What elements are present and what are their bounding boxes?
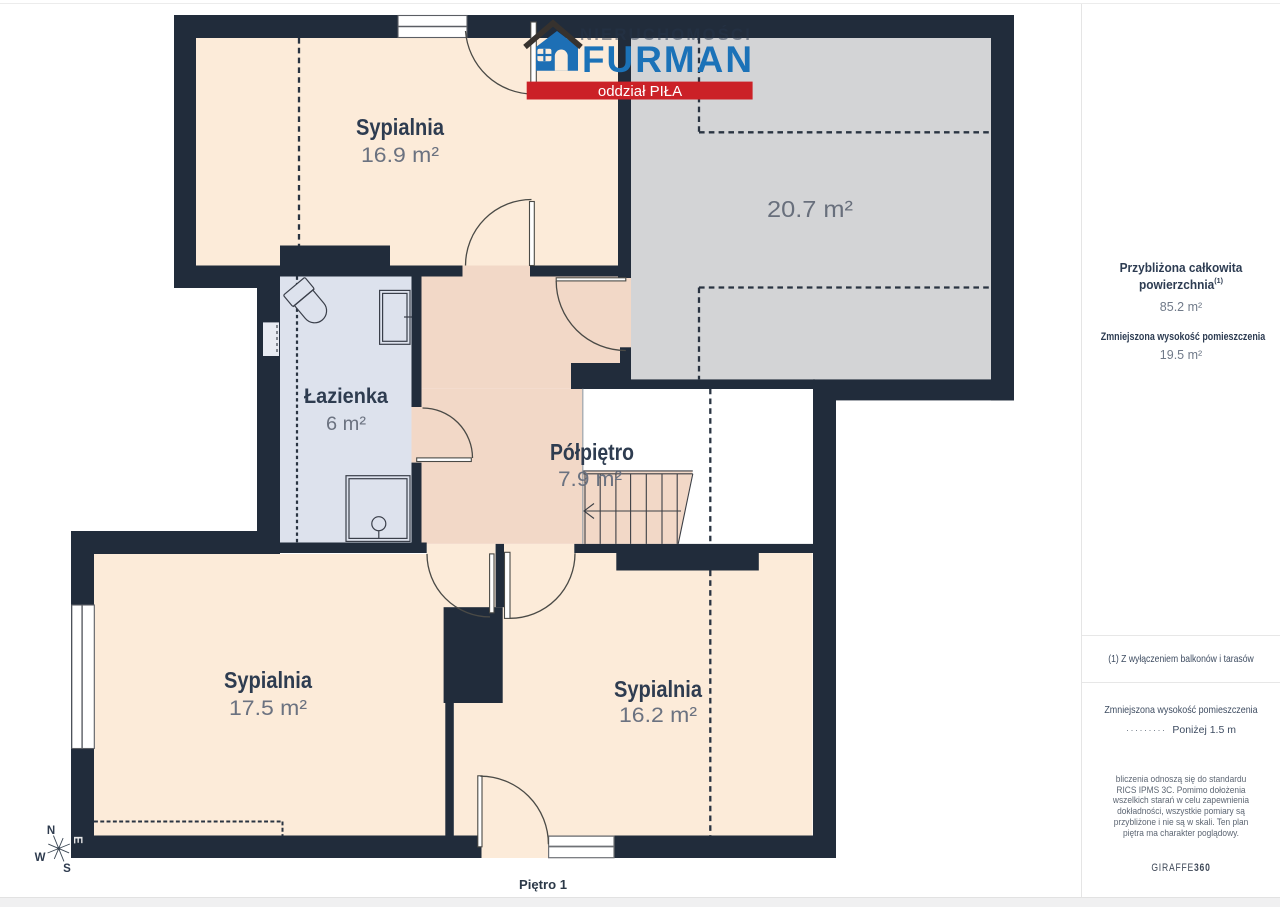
svg-text:S: S	[63, 863, 71, 875]
svg-text:6 m²: 6 m²	[326, 414, 366, 435]
svg-text:17.5 m²: 17.5 m²	[229, 697, 307, 720]
svg-text:Półpiętro: Półpiętro	[550, 439, 634, 465]
svg-text:Łazienka: Łazienka	[304, 385, 388, 408]
svg-text:Sypialnia: Sypialnia	[614, 676, 702, 702]
svg-text:7.9 m²: 7.9 m²	[558, 468, 622, 491]
svg-text:Piętro 1: Piętro 1	[519, 877, 567, 892]
svg-text:Sypialnia: Sypialnia	[356, 114, 444, 140]
svg-text:FURMAN: FURMAN	[582, 39, 754, 80]
svg-text:E: E	[71, 836, 83, 844]
svg-text:16.9 m²: 16.9 m²	[361, 144, 439, 167]
svg-text:W: W	[35, 852, 46, 864]
svg-text:20.7 m²: 20.7 m²	[767, 196, 853, 222]
svg-text:N: N	[47, 825, 55, 837]
svg-text:16.2 m²: 16.2 m²	[619, 704, 697, 727]
svg-text:Sypialnia: Sypialnia	[224, 667, 312, 693]
svg-text:oddział PIŁA: oddział PIŁA	[598, 83, 682, 100]
